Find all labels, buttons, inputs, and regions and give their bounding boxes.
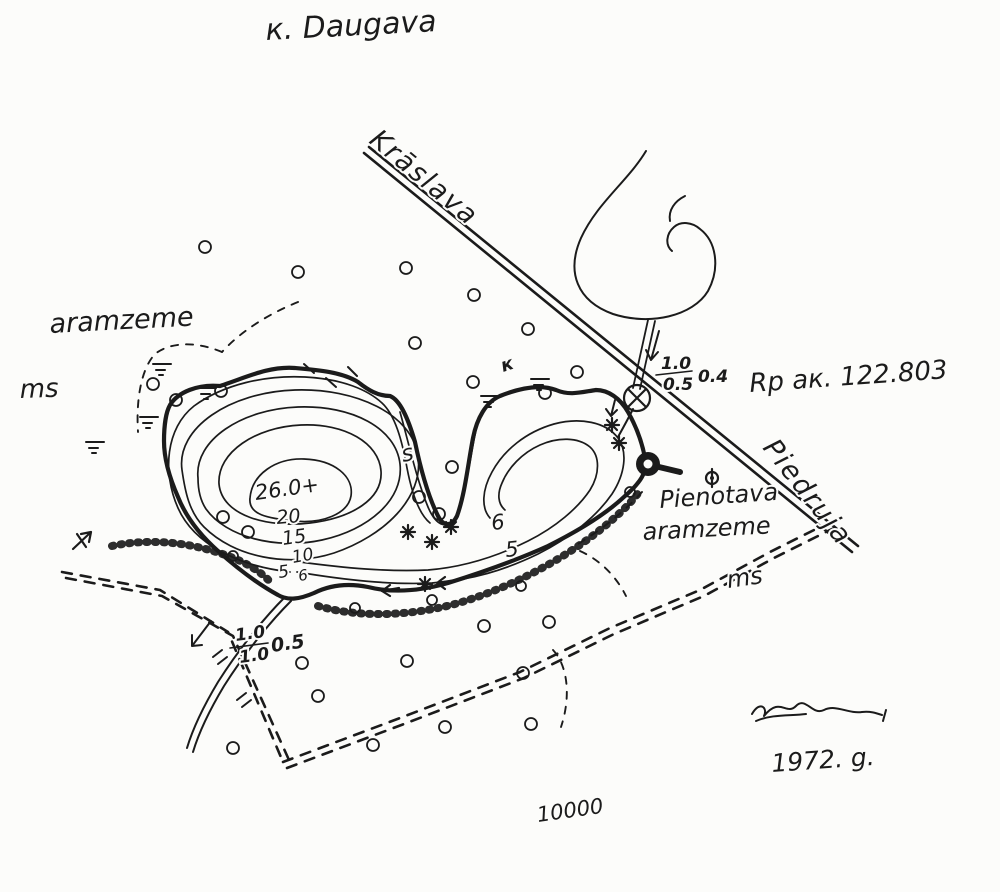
upper-pond-outline (574, 151, 715, 319)
benchmark-label: Rp ак. 122.803 (748, 355, 948, 399)
depth-10-label: 10 (290, 544, 315, 567)
k-glyph: к (498, 353, 517, 377)
depth-6-east-label: 6 (490, 510, 506, 535)
hand-drawn-lake-survey-map: к. Daugava Krāslava Piedruja Rp ак. 122.… (0, 0, 1000, 892)
outflow-fraction: 1.0 1.0 0.5 (230, 622, 306, 668)
culvert-fraction: 1.0 0.5 0.4 (656, 354, 728, 395)
signature-squiggle (752, 703, 886, 721)
ms-east-label: ms (725, 561, 764, 594)
shore-flow-arrows (382, 577, 456, 596)
depth-max-label: 26.0+ (253, 472, 320, 505)
pointer-glyph-west (73, 532, 91, 549)
map-title: к. Daugava (265, 4, 438, 48)
map-text-layer: к. Daugava Krāslava Piedruja Rp ак. 122.… (19, 4, 948, 827)
field-track-dashed (62, 518, 842, 768)
outflow-extra: 0.5 (270, 630, 306, 656)
outflow-stream (187, 597, 291, 752)
outflow-numerator: 1.0 (234, 622, 267, 646)
map-canvas: к. Daugava Krāslava Piedruja Rp ак. 122.… (0, 0, 1000, 892)
aramzeme-west-label: aramzeme (49, 301, 195, 340)
spring-well-icon (636, 452, 680, 476)
culvert-icon (624, 385, 650, 411)
culvert-extra: 0.4 (698, 367, 728, 387)
aramzeme-east-label: aramzeme (642, 511, 771, 546)
scale-label: 10000 (535, 794, 605, 827)
depth-6-west-label: 6 (297, 566, 309, 585)
depth-5-west-label: 5 (277, 562, 291, 583)
culvert-denominator: 0.5 (663, 375, 693, 395)
year-label: 1972. g. (770, 742, 875, 778)
land-boundaries-dashed (138, 302, 642, 727)
road-label-kraslava: Krāslava (364, 124, 485, 233)
depth-labels: 26.0+ 20 15 10 5 6 6 5 (253, 472, 519, 585)
ms-west-label: ms (19, 374, 59, 405)
outflow-denominator: 1.0 (238, 644, 271, 668)
pienotava-label: Pienotava (658, 478, 778, 514)
depth-5-east-label: 5 (504, 537, 520, 562)
inflow-stream (618, 320, 655, 437)
